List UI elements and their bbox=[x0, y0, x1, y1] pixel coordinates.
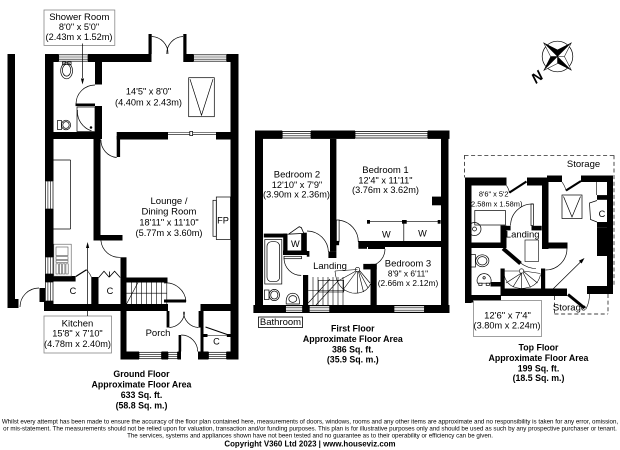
svg-text:12'4" x 11'11": 12'4" x 11'11" bbox=[358, 175, 412, 185]
svg-text:W: W bbox=[418, 229, 427, 239]
svg-text:FP: FP bbox=[217, 216, 229, 226]
svg-text:First Floor: First Floor bbox=[331, 324, 375, 334]
svg-text:C: C bbox=[70, 286, 77, 296]
svg-text:8'6" x 5'2": 8'6" x 5'2" bbox=[479, 190, 512, 199]
svg-text:199 Sq. ft.: 199 Sq. ft. bbox=[518, 364, 560, 374]
svg-text:(5.77m x 3.60m): (5.77m x 3.60m) bbox=[136, 228, 203, 238]
svg-text:(4.40m x 2.43m): (4.40m x 2.43m) bbox=[115, 98, 182, 108]
svg-text:Landing: Landing bbox=[313, 261, 347, 272]
svg-text:Ground Floor: Ground Floor bbox=[113, 369, 170, 379]
svg-text:Bedroom 2: Bedroom 2 bbox=[274, 169, 320, 180]
svg-text:Porch: Porch bbox=[146, 328, 171, 339]
svg-text:(2.58m x 1.58m): (2.58m x 1.58m) bbox=[469, 200, 523, 209]
svg-text:Lounge /: Lounge / bbox=[151, 196, 188, 207]
svg-text:15'8" x 7'10": 15'8" x 7'10" bbox=[52, 329, 102, 339]
svg-text:(2.43m x 1.52m): (2.43m x 1.52m) bbox=[46, 32, 113, 42]
svg-text:(3.90m x 2.36m): (3.90m x 2.36m) bbox=[263, 190, 330, 200]
svg-text:633 Sq. ft.: 633 Sq. ft. bbox=[121, 390, 163, 400]
svg-text:C: C bbox=[213, 337, 220, 347]
svg-text:Landing: Landing bbox=[506, 230, 540, 241]
svg-text:W: W bbox=[291, 239, 300, 249]
svg-text:Bedroom 1: Bedroom 1 bbox=[362, 165, 408, 176]
svg-text:Approximate Floor Area: Approximate Floor Area bbox=[489, 353, 589, 363]
svg-text:W: W bbox=[382, 230, 391, 240]
svg-text:12'10" x 7'9": 12'10" x 7'9" bbox=[272, 180, 322, 190]
svg-text:Approximate Floor Area: Approximate Floor Area bbox=[303, 334, 403, 344]
svg-text:(2.66m x 2.12m): (2.66m x 2.12m) bbox=[378, 278, 439, 288]
svg-text:Whilst every attempt has been: Whilst every attempt has been made to en… bbox=[2, 419, 619, 426]
svg-text:C: C bbox=[107, 286, 114, 296]
svg-text:8'0" x 5'0": 8'0" x 5'0" bbox=[59, 22, 99, 32]
svg-text:C: C bbox=[599, 209, 606, 219]
svg-text:or mis-statement. The measurem: or mis-statement. The measurements shoul… bbox=[3, 426, 617, 433]
svg-text:Dining Room: Dining Room bbox=[142, 207, 197, 218]
svg-text:(3.76m x 3.62m): (3.76m x 3.62m) bbox=[352, 185, 419, 195]
svg-text:Copyright V360 Ltd 2023 | www.: Copyright V360 Ltd 2023 | www.houseviz.c… bbox=[224, 439, 395, 448]
svg-text:(3.80m x 2.24m): (3.80m x 2.24m) bbox=[474, 321, 541, 331]
svg-text:386 Sq. ft.: 386 Sq. ft. bbox=[332, 345, 374, 355]
svg-text:(35.9 Sq. m.): (35.9 Sq. m.) bbox=[327, 355, 379, 365]
svg-text:(4.78m x 2.40m): (4.78m x 2.40m) bbox=[44, 339, 111, 349]
svg-text:Storage: Storage bbox=[553, 303, 586, 314]
svg-text:18'11" x 11'10": 18'11" x 11'10" bbox=[139, 217, 198, 227]
svg-text:8'9" x 6'11": 8'9" x 6'11" bbox=[388, 269, 428, 279]
svg-text:Bathroom: Bathroom bbox=[260, 317, 301, 328]
svg-text:(18.5 Sq. m.): (18.5 Sq. m.) bbox=[513, 373, 565, 383]
svg-text:Storage: Storage bbox=[567, 159, 600, 170]
svg-text:14'5" x 8'0": 14'5" x 8'0" bbox=[126, 87, 171, 97]
svg-text:Approximate Floor Area: Approximate Floor Area bbox=[92, 380, 192, 390]
svg-text:Top Floor: Top Floor bbox=[519, 343, 559, 353]
svg-text:(58.8 Sq. m.): (58.8 Sq. m.) bbox=[116, 401, 168, 411]
